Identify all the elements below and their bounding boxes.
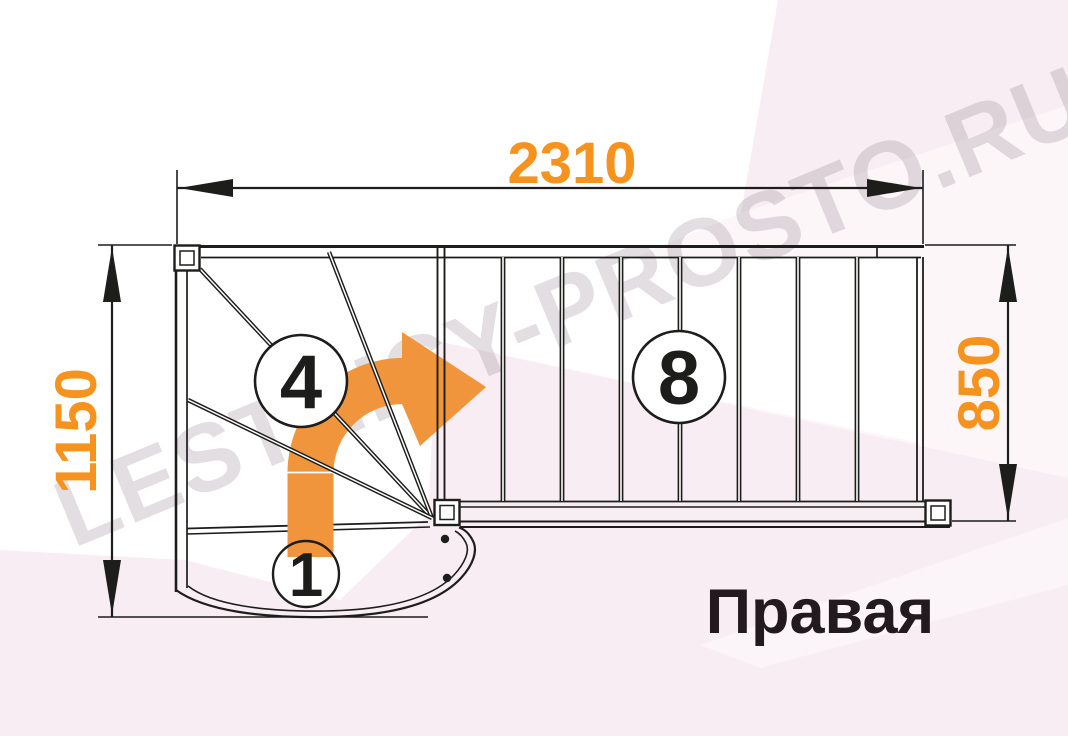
stair-plan-canvas: LESTNICY-PROSTO.RU 2310 1150 850	[0, 0, 1068, 736]
stair-orientation-title: Правая	[706, 577, 935, 647]
dimension-value-flight-width: 850	[947, 335, 1012, 432]
arrowhead-up-icon	[103, 247, 121, 302]
post-center-inner	[440, 506, 454, 520]
winder-step-count: 4	[280, 340, 322, 425]
straight-step-count: 8	[658, 336, 700, 421]
fastener-dot	[441, 535, 449, 543]
dimension-total-width	[98, 245, 428, 617]
arrowhead-up-icon	[999, 247, 1017, 302]
fastener-dot	[443, 574, 451, 582]
dimension-value-total-length: 2310	[507, 131, 636, 196]
arrowhead-down-icon	[103, 560, 121, 615]
stair-plan-svg: 2310 1150 850	[0, 0, 1068, 736]
arrowhead-right-icon	[867, 179, 921, 197]
dimension-value-total-width: 1150	[44, 368, 109, 494]
post-bottom-right-inner	[931, 506, 945, 520]
first-step-number: 1	[289, 541, 323, 610]
arrowhead-down-icon	[999, 464, 1017, 519]
arrowhead-left-icon	[179, 179, 233, 197]
post-top-left-inner	[180, 251, 194, 265]
